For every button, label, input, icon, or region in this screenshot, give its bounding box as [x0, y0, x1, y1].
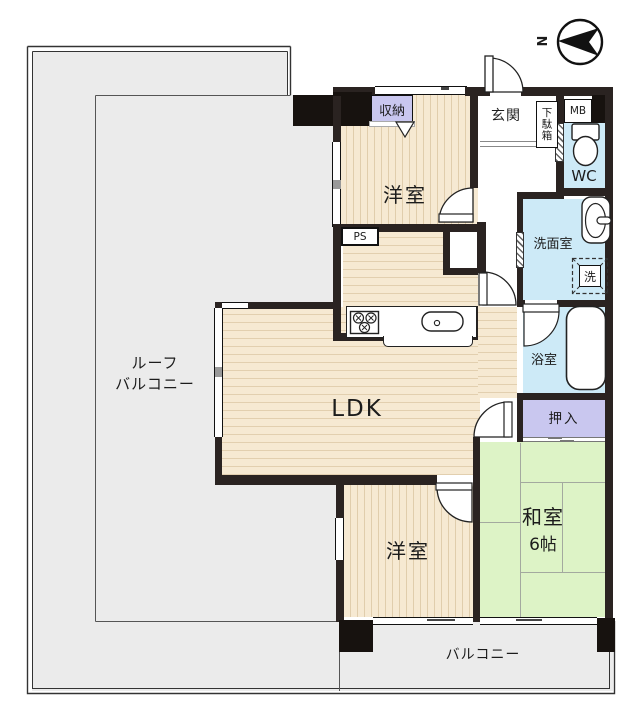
bedroom-top-label: 洋室 — [365, 182, 445, 208]
meter-box-wall — [592, 95, 605, 123]
washer-label-box: 洗 — [579, 265, 601, 287]
tatami-line — [520, 443, 521, 617]
wall-japanese-room-left — [473, 437, 480, 622]
hallway-floor — [480, 143, 556, 192]
wall-toilet-bottom — [556, 188, 613, 196]
shoe-cabinet-box: 下駄箱 — [536, 101, 558, 148]
entrance-label: 玄関 — [478, 106, 534, 128]
roof-balcony-label-line2: バルコニー — [90, 374, 220, 395]
window-top-bedroom — [375, 86, 467, 95]
wall-bathroom-bottom — [517, 393, 613, 400]
niche-wall-bottom — [443, 268, 478, 275]
wall-washroom-bottom-b — [557, 300, 613, 307]
balcony-label: バルコニー — [437, 646, 529, 666]
window-handle — [427, 619, 455, 621]
pipe-space-label: PS — [354, 231, 367, 243]
meter-box-label: MB — [570, 105, 586, 117]
entrance-door-icon — [485, 56, 523, 92]
entrance-step — [480, 141, 536, 147]
washroom-label: 洗面室 — [515, 236, 591, 254]
pipe-space-box: PS — [341, 227, 379, 246]
kitchen-counter — [346, 306, 477, 338]
closet-wall-mass — [293, 95, 333, 126]
japanese-room-label: 和室 — [503, 505, 583, 529]
ldk-label: LDK — [317, 395, 397, 423]
japanese-room-size-label: 6帖 — [505, 535, 581, 557]
balcony-pillar-left — [339, 620, 373, 652]
bathroom-floor — [523, 307, 607, 393]
bathroom-label: 浴室 — [516, 352, 572, 370]
window-mullion — [333, 180, 341, 189]
closet-top-box: 収納 — [371, 95, 413, 123]
ldk-floor-extension — [478, 305, 517, 398]
kitchen-counter-front — [383, 336, 473, 347]
hall-niche — [450, 232, 478, 268]
balcony-window-bedroom — [373, 617, 473, 625]
bedroom-bottom-label: 洋室 — [368, 538, 448, 564]
roof-balcony-label-line1: ルーフ — [90, 353, 220, 374]
oshiire-door-tick — [560, 440, 574, 442]
roof-balcony-top-strip — [32, 51, 288, 95]
roof-balcony-label: ルーフ バルコニー — [90, 353, 220, 395]
toilet-label: WC — [564, 165, 604, 187]
oshiire-label: 押入 — [523, 408, 605, 430]
wall-ldk-bottom — [215, 475, 437, 485]
floor-plan: 収納 下駄箱 MB PS — [0, 0, 633, 714]
shoe-cabinet-label: 下駄箱 — [540, 107, 555, 142]
tatami-line — [520, 572, 605, 573]
compass-north-label: N — [533, 31, 555, 51]
wall-hall-left — [477, 222, 486, 273]
wall-washroom-bottom-a — [517, 300, 525, 307]
window-mullion — [441, 87, 449, 90]
closet-front-strip — [369, 121, 415, 127]
window-bedroom-bottom-left — [335, 518, 344, 560]
japanese-room-door-area — [480, 398, 517, 442]
compass-icon — [558, 20, 602, 64]
window-handle — [516, 619, 542, 621]
japanese-room-floor — [480, 442, 605, 617]
meter-box: MB — [564, 99, 592, 123]
wall-washroom-top — [517, 192, 564, 199]
oshiire-door-tick — [548, 437, 562, 439]
wall-bedroom-top-right — [470, 92, 478, 188]
closet-top-label: 収納 — [379, 100, 405, 119]
balcony-pillar-right — [597, 618, 615, 652]
wall-right — [605, 88, 613, 622]
washer-label: 洗 — [584, 268, 596, 285]
